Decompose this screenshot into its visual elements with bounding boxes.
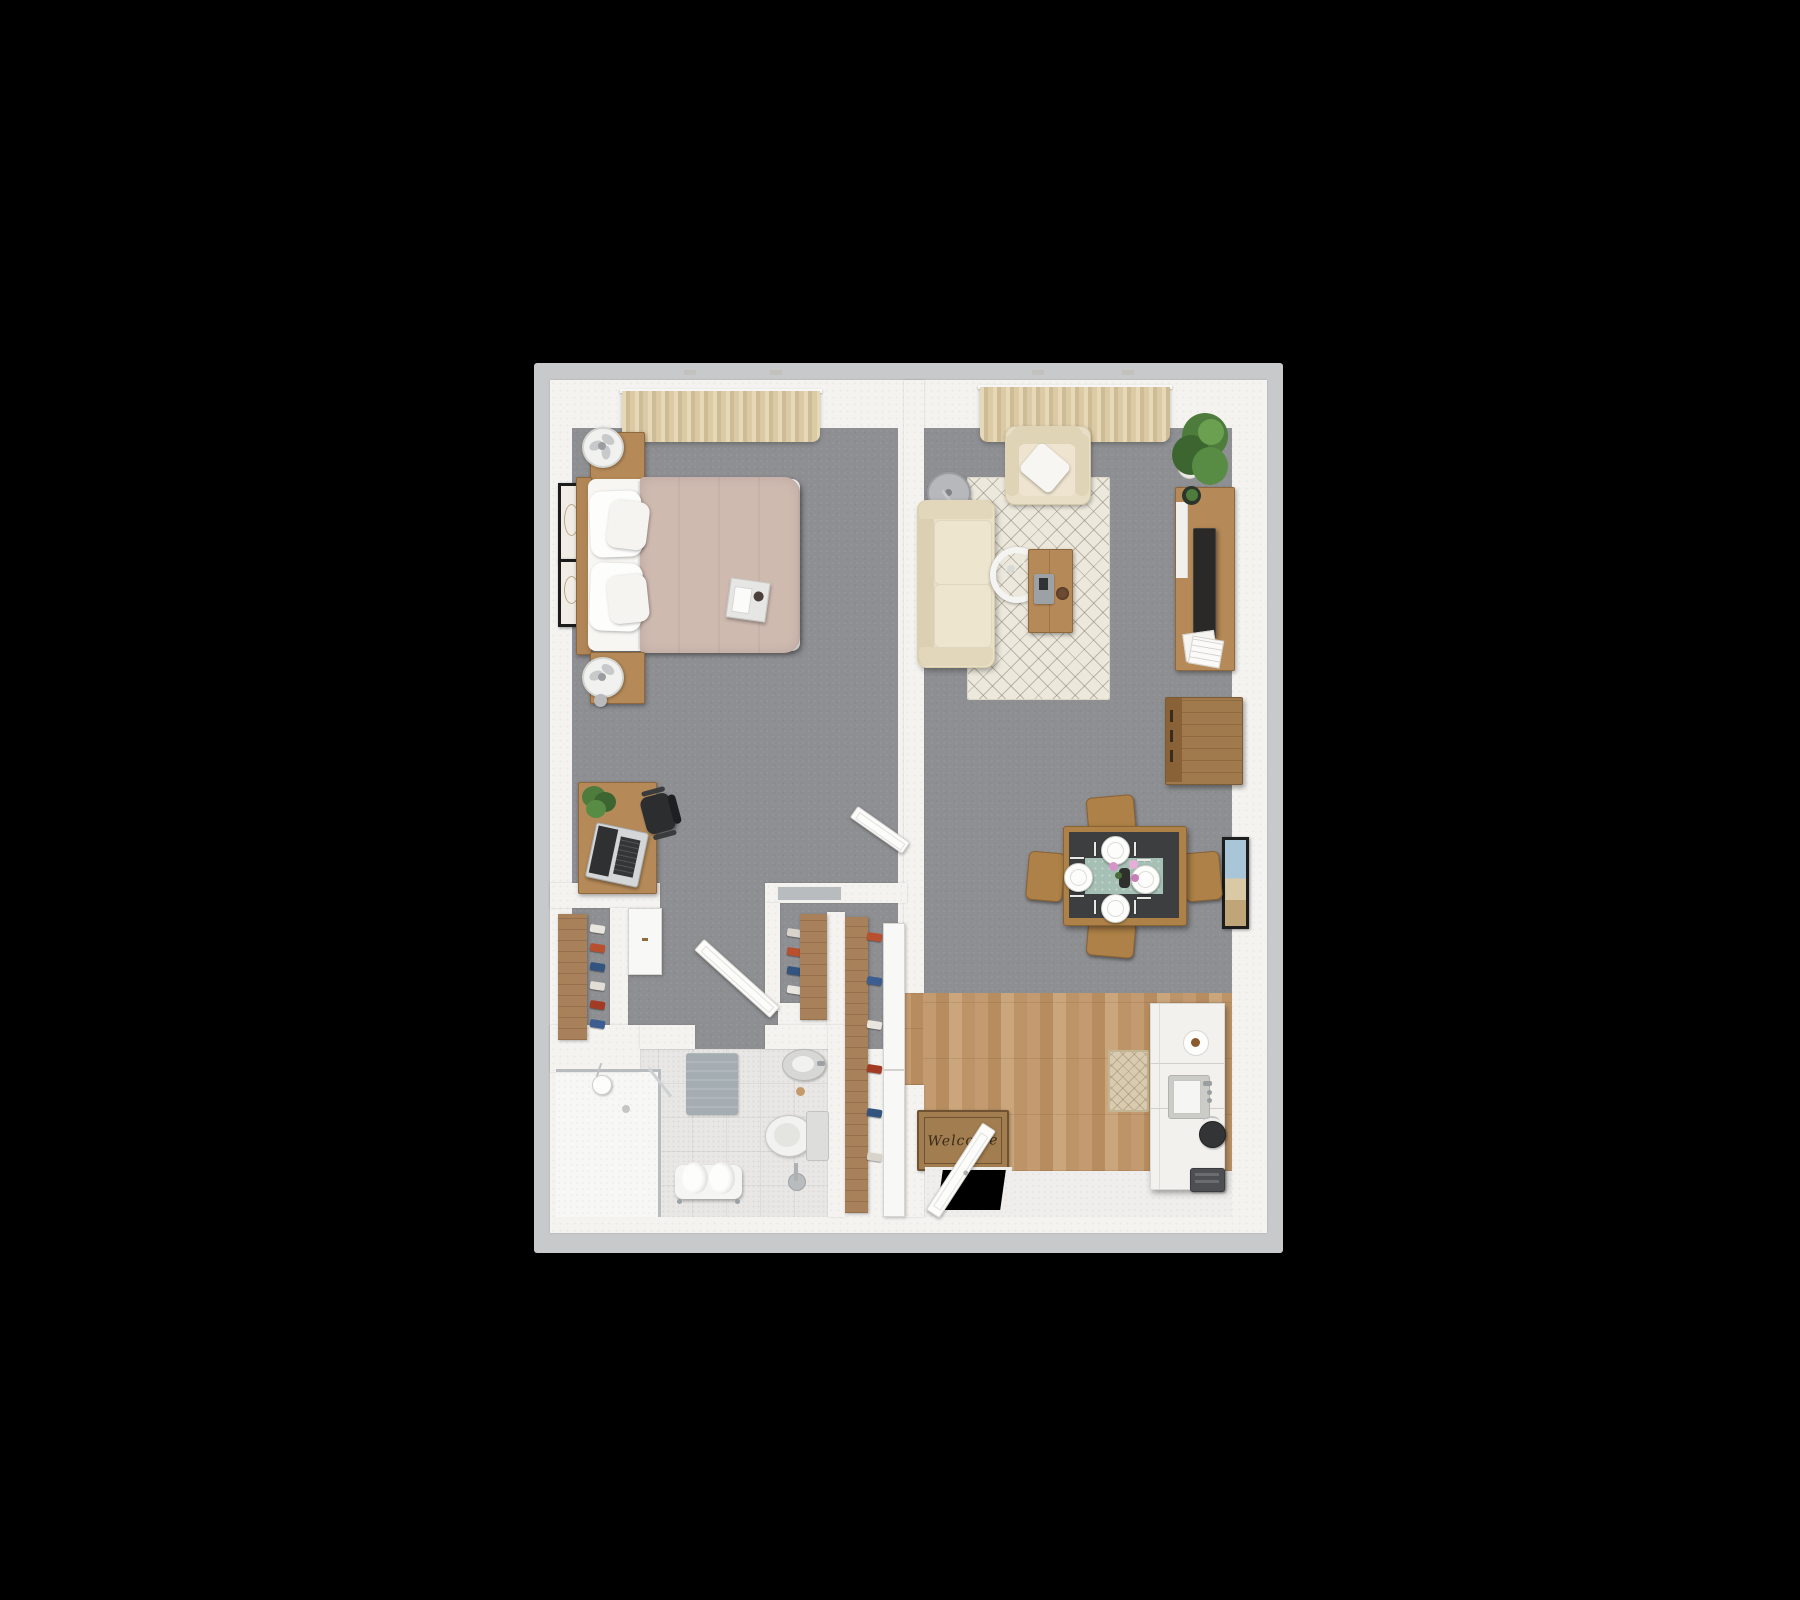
toilet-paper-stand bbox=[785, 1163, 807, 1189]
crate-side-face bbox=[1166, 698, 1182, 782]
closet-item bbox=[866, 976, 882, 986]
flower-vase bbox=[1107, 860, 1141, 894]
sofa-back bbox=[917, 500, 934, 666]
place-setting bbox=[1064, 863, 1093, 892]
console-plant-leaf bbox=[1186, 489, 1198, 501]
laptop bbox=[585, 822, 649, 888]
shower-glass-top bbox=[556, 1069, 660, 1072]
pendant-light bbox=[592, 1075, 612, 1095]
plant-foliage bbox=[586, 800, 606, 818]
shower-floor bbox=[556, 1072, 660, 1217]
toilet-seat-inner bbox=[774, 1123, 800, 1147]
sliding-door-split bbox=[884, 1069, 904, 1071]
laptop-keyboard bbox=[613, 836, 640, 877]
tray-cup bbox=[753, 591, 764, 602]
shoe-closet-west bbox=[558, 914, 587, 1040]
wall-vent-mark bbox=[1122, 370, 1134, 375]
closet-item bbox=[866, 1152, 882, 1162]
dining-chair-east bbox=[1182, 850, 1223, 902]
tray-book bbox=[731, 586, 752, 614]
toaster-slot bbox=[1195, 1180, 1219, 1183]
cutlery bbox=[1094, 900, 1096, 914]
remote bbox=[1039, 578, 1048, 590]
closet-item bbox=[866, 1064, 882, 1074]
sofa-arm bbox=[919, 647, 993, 666]
fan-hub bbox=[598, 442, 606, 450]
sink-basin bbox=[1173, 1080, 1201, 1114]
closet-item bbox=[866, 1108, 882, 1118]
fan-hub bbox=[598, 673, 606, 681]
cabinet-handle bbox=[642, 938, 648, 941]
towel-bench bbox=[675, 1159, 742, 1204]
counter-seam bbox=[1151, 1063, 1224, 1064]
closet-item bbox=[866, 1020, 882, 1030]
faucet-handle bbox=[1207, 1090, 1212, 1095]
sofa-cushion bbox=[934, 584, 992, 648]
wardrobe-sliding-doors bbox=[883, 923, 905, 1217]
rolled-towel bbox=[682, 1162, 708, 1194]
kettle-handle bbox=[1203, 1116, 1220, 1128]
divider-wall-upper bbox=[904, 380, 924, 993]
bench-leg bbox=[677, 1199, 682, 1204]
crate-book-slot bbox=[1170, 750, 1173, 762]
flower-leaf bbox=[1115, 872, 1122, 879]
plant-foliage bbox=[1192, 447, 1228, 485]
flower bbox=[1109, 862, 1118, 871]
closet-item bbox=[589, 962, 605, 972]
cutlery bbox=[1094, 842, 1096, 856]
dining-chair-west bbox=[1025, 850, 1066, 902]
decor-sphere bbox=[594, 694, 607, 707]
place-setting bbox=[1101, 894, 1130, 923]
kitchen-faucet bbox=[1203, 1081, 1212, 1086]
flower bbox=[1131, 874, 1139, 882]
table-fan-top bbox=[582, 427, 624, 468]
entry-wardrobe-rack bbox=[865, 923, 883, 1219]
wall-vent-mark bbox=[1032, 370, 1044, 375]
framed-art-east bbox=[1222, 837, 1249, 929]
sofa-arm bbox=[919, 500, 993, 519]
counter-edge-ridge bbox=[1159, 1004, 1160, 1189]
hall-cabinet bbox=[628, 908, 662, 975]
toaster-slot bbox=[1195, 1173, 1219, 1176]
shoe-closet-middle bbox=[800, 914, 827, 1020]
table-fan-bottom bbox=[582, 657, 624, 698]
faucet-handle bbox=[1207, 1098, 1212, 1103]
pendant-hub bbox=[1007, 565, 1015, 573]
tv-console bbox=[1175, 487, 1235, 671]
breakfast-tray bbox=[725, 577, 770, 622]
storage-crate bbox=[1165, 697, 1243, 785]
round-sink bbox=[782, 1049, 826, 1081]
kitchen-counter bbox=[1150, 1003, 1225, 1190]
shower-glass-side bbox=[658, 1069, 661, 1217]
bathroom-north-wall-mid bbox=[640, 1025, 695, 1049]
soap-dish bbox=[796, 1087, 805, 1096]
cutlery bbox=[1134, 900, 1136, 914]
console-shelf bbox=[1176, 502, 1188, 578]
magazine bbox=[1188, 635, 1224, 668]
tp-bar bbox=[794, 1163, 798, 1181]
sofa bbox=[917, 500, 993, 666]
toilet-tank bbox=[806, 1111, 829, 1161]
armchair-arm bbox=[1075, 434, 1089, 496]
plant-foliage bbox=[1198, 419, 1224, 445]
pillow bbox=[606, 573, 651, 625]
cutlery bbox=[1070, 895, 1084, 897]
closet-item bbox=[589, 1019, 605, 1029]
tv-flatscreen bbox=[1193, 528, 1216, 638]
pastry bbox=[1191, 1038, 1200, 1047]
pillow bbox=[605, 499, 651, 552]
flower bbox=[1129, 860, 1138, 869]
rolled-towel bbox=[709, 1162, 735, 1194]
decor-bowl bbox=[1056, 587, 1069, 600]
desk-plant bbox=[580, 784, 618, 822]
crate-book-slot bbox=[1170, 730, 1173, 742]
sofa-cushion bbox=[934, 520, 992, 585]
bed-duvet bbox=[640, 477, 800, 653]
crate-book-slot bbox=[1170, 710, 1173, 722]
armchair-back bbox=[1011, 426, 1083, 446]
closet-item bbox=[589, 1000, 605, 1010]
shower-drain bbox=[622, 1105, 630, 1113]
armchair bbox=[1005, 426, 1089, 503]
bath-mat bbox=[686, 1053, 738, 1115]
glass-transom-panel bbox=[777, 886, 842, 901]
cutlery bbox=[1134, 842, 1136, 856]
cutlery bbox=[1070, 857, 1084, 859]
bedroom-window-curtains bbox=[622, 391, 820, 442]
shoe-rack-west bbox=[586, 915, 608, 1049]
kitchen-runner-rug bbox=[1108, 1050, 1149, 1112]
scene-canvas: Welcome bbox=[0, 0, 1800, 1600]
closet-item bbox=[866, 932, 882, 942]
sink-basin bbox=[792, 1056, 814, 1072]
armchair-arm bbox=[1005, 434, 1019, 496]
cutlery bbox=[1137, 897, 1151, 899]
closet-item bbox=[589, 924, 605, 934]
wall-vent-mark bbox=[770, 370, 782, 375]
closet-item bbox=[589, 981, 605, 991]
sink-faucet bbox=[817, 1061, 825, 1066]
coffee-table bbox=[1028, 549, 1073, 633]
bathroom-east-wall bbox=[828, 1025, 845, 1217]
bench-leg bbox=[735, 1199, 740, 1204]
closet-item bbox=[589, 943, 605, 953]
floor-plan: Welcome bbox=[534, 363, 1283, 1253]
wall-vent-mark bbox=[684, 370, 696, 375]
